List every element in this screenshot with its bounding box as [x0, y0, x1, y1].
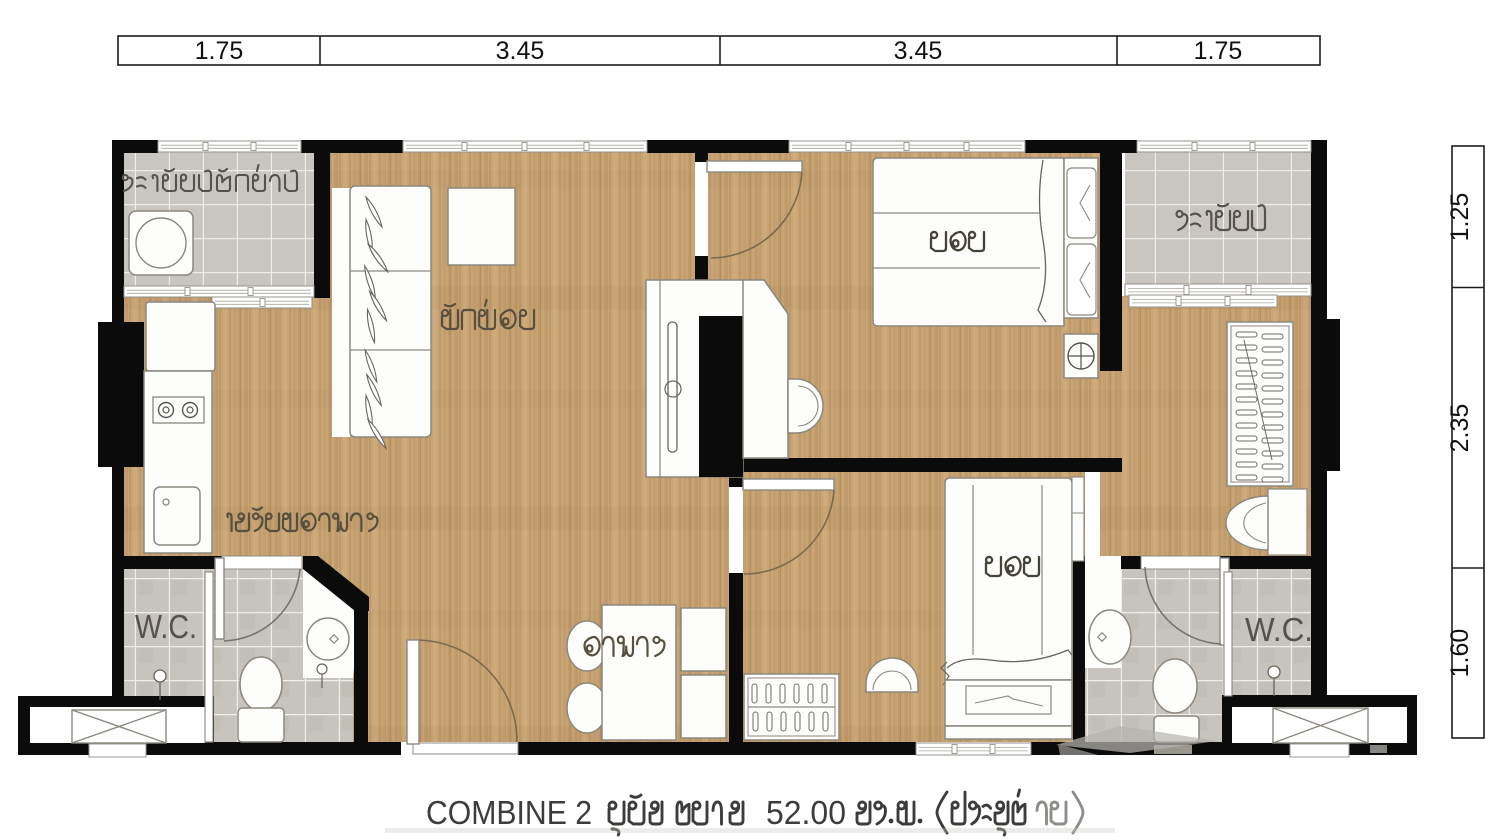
svg-text:COMBINE 2: COMBINE 2: [426, 794, 592, 831]
svg-text:52.00: 52.00: [766, 794, 846, 831]
svg-text:2.35: 2.35: [1446, 404, 1474, 453]
svg-text:W.C.: W.C.: [1245, 611, 1313, 648]
svg-text:1.75: 1.75: [195, 37, 244, 65]
svg-text:3.45: 3.45: [894, 37, 943, 65]
svg-text:1.60: 1.60: [1446, 629, 1474, 678]
svg-text:3.45: 3.45: [496, 37, 545, 65]
svg-text:W.C.: W.C.: [135, 608, 197, 645]
svg-text:1.75: 1.75: [1194, 37, 1243, 65]
svg-text:1.25: 1.25: [1446, 193, 1474, 242]
